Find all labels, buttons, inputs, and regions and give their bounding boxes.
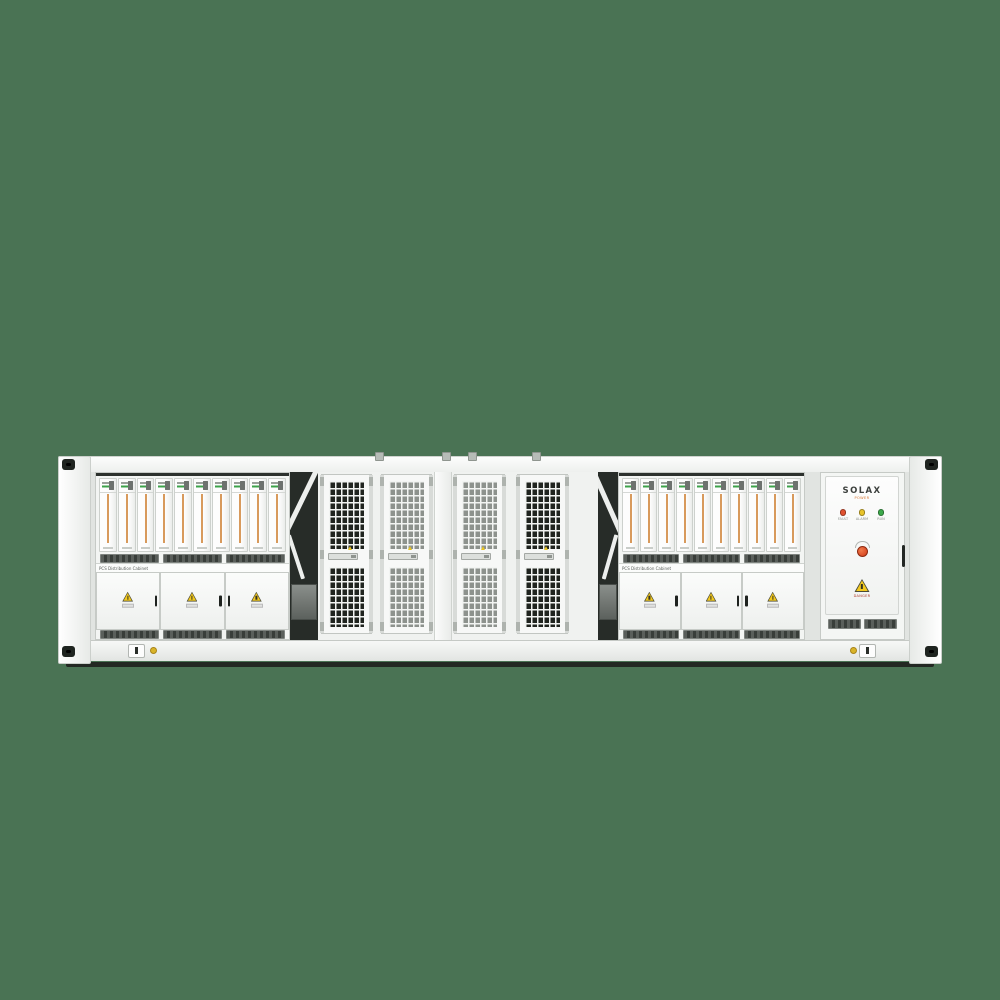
status-led-row: FAULT ALARM RUN [834,509,890,521]
equipment-bay: PCS Distribution Cabinet [91,472,909,640]
pcs-cabinet-label: PCS Distribution Cabinet [619,563,804,572]
cabinet-door [160,572,224,630]
hv-warning-triangle-icon [855,579,870,592]
mesh-panel-top [389,481,424,549]
warning-triangle-icon [186,592,198,608]
led-label: ALARM [853,517,871,521]
vent-segment [623,630,679,639]
module-display [278,481,283,490]
module-display [109,481,114,490]
module-status-panel [250,479,266,493]
module-orange-stripe [684,494,686,543]
door-latch [461,553,491,560]
module-display [222,481,227,490]
corner-casting-top-left [62,459,75,470]
danger-label: DANGER [854,594,871,598]
mesh-door-3 [454,474,505,634]
module-orange-stripe [630,494,632,543]
module-display [667,481,672,490]
battery-rack-right: PCS Distribution Cabinet [618,472,805,640]
estop-red-button [857,546,868,557]
rack-vent-strip [619,554,804,563]
door-handle [155,596,158,607]
battery-module-row [96,476,289,554]
warning-sticker [767,603,779,608]
led-indicator [878,509,885,516]
corner-casting-bottom-left [62,646,75,657]
warning-triangle-icon [644,592,656,608]
hv-warning-area: DANGER [854,579,871,598]
hinge-rail [369,475,373,633]
mesh-door-2 [381,474,432,634]
module-display [685,481,690,490]
warning-sticker [251,603,263,608]
module-orange-stripe [648,494,650,543]
rack-bottom-vent [619,630,804,639]
module-orange-stripe [276,494,278,543]
cabinet-door [742,572,804,630]
door-handle [737,596,740,607]
module-orange-stripe [774,494,776,543]
module-display [649,481,654,490]
battery-module [174,478,192,552]
battery-module [676,478,693,552]
container-base [66,662,934,667]
roof-hinge-tab [468,452,477,461]
cabinet-door [225,572,289,630]
module-foot [272,547,282,549]
battery-module [212,478,230,552]
frame-gap-right [598,472,618,640]
hinge-rail [516,475,520,633]
module-display [631,481,636,490]
battery-module [249,478,267,552]
module-display [739,481,744,490]
vent-segment [683,630,739,639]
module-status-panel [659,479,674,493]
module-orange-stripe [107,494,109,543]
junction-box [599,584,617,620]
vent-segment [744,630,800,639]
door-handle [219,596,222,607]
diagonal-brace [290,535,305,580]
module-foot [178,547,188,549]
battery-module [748,478,765,552]
mesh-door-4 [517,474,568,634]
door-latch [524,553,554,560]
pcs-cabinet-label: PCS Distribution Cabinet [96,563,289,572]
module-status-panel [213,479,229,493]
vent-segment [623,554,679,563]
battery-module-row [619,476,804,554]
mesh-panel-bottom [462,567,497,627]
led-indicator [859,509,866,516]
module-display [721,481,726,490]
door-latch [328,553,358,560]
module-foot [644,547,653,549]
battery-module [694,478,711,552]
cabinet-door [619,572,681,630]
module-foot [159,547,169,549]
module-orange-stripe [163,494,165,543]
module-status-panel [623,479,638,493]
module-status-panel [677,479,692,493]
module-foot [197,547,207,549]
mesh-panel-top [525,481,560,549]
vent-segment [744,554,800,563]
battery-module [99,478,117,552]
corner-casting-top-right [925,459,938,470]
bottom-rail [91,640,909,661]
battery-module [766,478,783,552]
junction-box [291,584,317,620]
vent-segment [683,554,739,563]
diagonal-brace [602,534,618,579]
module-status-panel [175,479,191,493]
battery-module [193,478,211,552]
battery-module [784,478,801,552]
mesh-panel-bottom [525,567,560,627]
module-orange-stripe [666,494,668,543]
module-foot [216,547,226,549]
module-orange-stripe [145,494,147,543]
battery-module [640,478,657,552]
battery-rack-left: PCS Distribution Cabinet [95,472,290,640]
brand-logo: SOLAX [826,486,898,496]
module-orange-stripe [201,494,203,543]
warning-triangle-icon [706,592,718,608]
module-foot [662,547,671,549]
cabinet-vent [828,619,897,629]
module-foot [235,547,245,549]
vent-segment [828,619,861,629]
battery-module [622,478,639,552]
yellow-plug-right [850,647,857,654]
module-status-panel [641,479,656,493]
module-foot [141,547,151,549]
mesh-door-section [318,472,598,640]
module-orange-stripe [239,494,241,543]
module-status-panel [232,479,248,493]
module-status-panel [100,479,116,493]
cabinet-handle [902,545,905,567]
status-led-alarm: ALARM [853,509,871,521]
cabinet-door [681,572,743,630]
module-display [793,481,798,490]
status-led-run: RUN [872,509,890,521]
battery-module [712,478,729,552]
hinge-rail [380,475,384,633]
corner-post-left [58,456,91,664]
module-status-panel [713,479,728,493]
vent-segment [226,630,285,639]
vent-segment [100,554,159,563]
roof-hinge-tab [375,452,384,461]
module-foot [770,547,779,549]
battery-module [231,478,249,552]
module-status-panel [269,479,285,493]
module-orange-stripe [720,494,722,543]
storage-container-unit: PCS Distribution Cabinet [58,456,942,668]
battery-module [658,478,675,552]
module-status-panel [749,479,764,493]
battery-module [137,478,155,552]
module-display [775,481,780,490]
module-status-panel [767,479,782,493]
module-status-panel [194,479,210,493]
door-handle [745,596,748,607]
battery-module [118,478,136,552]
battery-module [730,478,747,552]
module-status-panel [138,479,154,493]
battery-module [155,478,173,552]
vent-segment [226,554,285,563]
hinge-rail [565,475,569,633]
module-orange-stripe [126,494,128,543]
module-display [203,481,208,490]
diagonal-brace [290,472,318,534]
warning-triangle-icon [122,592,134,608]
rack-bottom-vent [96,630,289,639]
corner-casting-bottom-right [925,646,938,657]
module-foot [752,547,761,549]
module-foot [698,547,707,549]
solax-control-cabinet: SOLAX POWER FAULT ALARM RUN [820,472,905,640]
hinge-rail [502,475,506,633]
solax-cabinet-door: SOLAX POWER FAULT ALARM RUN [825,476,899,615]
led-label: RUN [872,517,890,521]
mesh-door-1 [321,474,372,634]
warning-sticker [644,603,656,608]
pcs-cabinet-doors [619,572,804,630]
warning-sticker [186,603,198,608]
mesh-panel-top [462,481,497,549]
module-foot [680,547,689,549]
hinge-rail [320,475,324,633]
warning-sticker [122,603,134,608]
module-orange-stripe [220,494,222,543]
module-status-panel [695,479,710,493]
vent-segment [100,630,159,639]
pcs-cabinet-doors [96,572,289,630]
module-display [757,481,762,490]
rack-vent-strip [96,554,289,563]
warning-triangle-icon [767,592,779,608]
module-orange-stripe [257,494,259,543]
module-foot [122,547,132,549]
door-latch [388,553,418,560]
brand-tagline: POWER [826,496,898,500]
mesh-panel-bottom [329,567,364,627]
module-display [184,481,189,490]
module-status-panel [785,479,800,493]
module-orange-stripe [756,494,758,543]
frame-gap-left [290,472,318,640]
module-status-panel [156,479,172,493]
hinge-rail [429,475,433,633]
center-mullion [434,472,452,640]
module-display [165,481,170,490]
corner-post-right [909,456,942,664]
door-handle [228,596,231,607]
module-display [128,481,133,490]
door-handle [675,596,678,607]
warning-triangle-icon [251,592,263,608]
mesh-panel-top [329,481,364,549]
mesh-panel-bottom [389,567,424,627]
module-orange-stripe [738,494,740,543]
rail-latch-left [128,644,145,658]
battery-module [268,478,286,552]
module-foot [734,547,743,549]
roof-hinge-tab [442,452,451,461]
diagonal-brace [598,472,618,534]
module-orange-stripe [182,494,184,543]
cabinet-door [96,572,160,630]
module-display [240,481,245,490]
module-foot [788,547,797,549]
module-foot [103,547,113,549]
module-status-panel [119,479,135,493]
vent-segment [163,554,222,563]
module-foot [716,547,725,549]
module-display [146,481,151,490]
module-orange-stripe [702,494,704,543]
module-display [703,481,708,490]
led-indicator [840,509,847,516]
scene-background: PCS Distribution Cabinet [0,0,1000,1000]
rail-latch-right [859,644,876,658]
warning-sticker [706,603,718,608]
vent-segment [864,619,897,629]
status-led-fault: FAULT [834,509,852,521]
roof-hinge-tab [532,452,541,461]
module-status-panel [731,479,746,493]
vent-segment [163,630,222,639]
module-foot [253,547,263,549]
module-foot [626,547,635,549]
emergency-stop-button [854,541,870,557]
module-display [259,481,264,490]
module-orange-stripe [792,494,794,543]
hinge-rail [453,475,457,633]
yellow-plug-left [150,647,157,654]
led-label: FAULT [834,517,852,521]
